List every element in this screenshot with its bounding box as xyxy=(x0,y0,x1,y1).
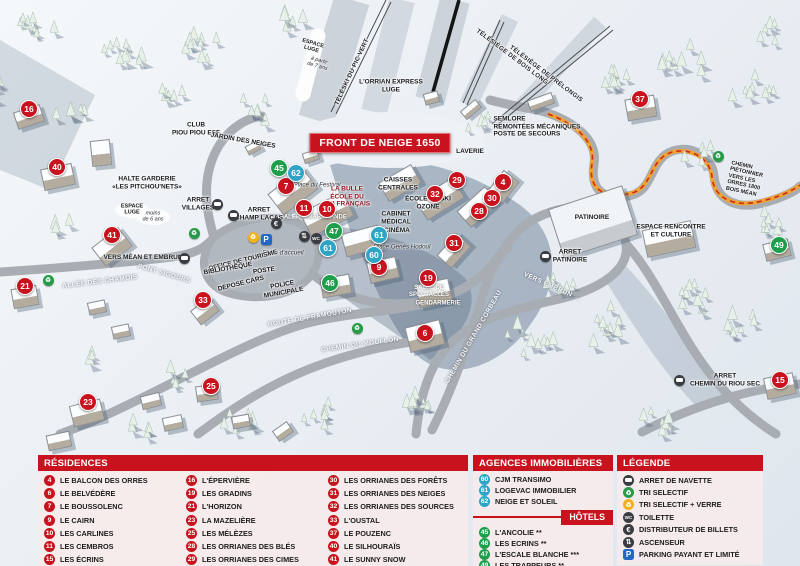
map-marker-25: 25 xyxy=(202,377,220,395)
legend-badge: 7 xyxy=(44,501,55,512)
map-marker-61: 61 xyxy=(370,226,388,244)
map-marker-31: 31 xyxy=(445,234,463,252)
legend-badge: 6 xyxy=(44,488,55,499)
map-label: ARRET CHEMIN DU RIOU SEC xyxy=(690,372,760,387)
legend-item: 46LES ECRINS ** xyxy=(479,538,607,549)
legend-item-label: L'ÉPERVIÈRE xyxy=(202,476,250,485)
map-label: GALERIE MARCHANDE xyxy=(279,214,347,221)
legend-badge: 21 xyxy=(186,501,197,512)
legend-item: 32LES ORRIANES DES SOURCES xyxy=(328,500,462,513)
legend-badge: 47 xyxy=(479,549,490,560)
legend-badge: 31 xyxy=(328,488,339,499)
residences-column: 30LES ORRIANES DES FORÊTS31LES ORRIANES … xyxy=(328,474,462,566)
resort-map: CLUB PIOU PIOU ESFJARDIN DES NEIGESESPAC… xyxy=(0,0,800,566)
legende-list: ARRET DE NAVETTE♻TRI SELECTIF♻TRI SELECT… xyxy=(617,471,763,565)
legend-item-label: CJM TRANSIMO xyxy=(495,475,551,484)
atm-icon: € xyxy=(271,218,282,229)
map-label: HALTE GARDERIE «LES PITCHOU'NETS» xyxy=(112,175,182,190)
legend-item: WCTOILETTE xyxy=(623,511,757,523)
map-label: Place Genès Hodoul xyxy=(374,243,431,250)
map-marker-46: 46 xyxy=(321,274,339,292)
legend-badge: 32 xyxy=(328,501,339,512)
legend-item-label: L'OUSTAL xyxy=(344,516,380,525)
legend-item-label: LA MAZELIÈRE xyxy=(202,516,256,525)
legend-badge: 33 xyxy=(328,515,339,526)
hotels-divider: HÔTELS xyxy=(473,510,613,525)
map-label: VERS MÉAN ET EMBRUN xyxy=(103,254,182,262)
legend-badge: 4 xyxy=(44,475,55,486)
map-label: GENDARMERIE xyxy=(415,300,460,307)
map-marker-41: 41 xyxy=(103,226,121,244)
legend-item-label: PARKING PAYANT ET LIMITÉ xyxy=(639,550,740,559)
front-de-neige-sign: FRONT DE NEIGE 1650 xyxy=(309,133,450,153)
map-label: ESPACE LUGE xyxy=(121,204,143,217)
legend-item-label: LES ORRIANES DES BLÉS xyxy=(202,542,295,551)
map-marker-16: 16 xyxy=(20,100,38,118)
map-marker-29: 29 xyxy=(448,171,466,189)
legend-item-label: LE BALCON DES ORRES xyxy=(60,476,148,485)
agences-header: AGENCES IMMOBILIÈRES xyxy=(473,455,613,471)
bus-stop-icon xyxy=(179,253,190,264)
legend-item-label: ARRET DE NAVETTE xyxy=(639,476,712,485)
legend-item-label: TRI SELECTIF xyxy=(639,488,688,497)
legend-item: 7LE BOUSSOLENC xyxy=(44,500,178,513)
legend-item: ♻TRI SELECTIF + VERRE xyxy=(623,499,757,511)
legend-item: 62NEIGE ET SOLEIL xyxy=(479,496,607,507)
legend-item: 45L'ANCOLIE ** xyxy=(479,527,607,538)
bus-stop-icon xyxy=(674,375,685,386)
residences-column: 4LE BALCON DES ORRES6LE BELVÉDÈRE7LE BOU… xyxy=(44,474,178,566)
map-marker-23: 23 xyxy=(79,393,97,411)
legend-item: 9LE CAIRN xyxy=(44,514,178,527)
bus-stop-icon xyxy=(623,475,634,486)
legend-item-label: LES ÉCRINS xyxy=(60,555,104,564)
atm-icon: € xyxy=(623,524,634,535)
recycle-green-icon: ♻ xyxy=(623,487,634,498)
legend-badge: 29 xyxy=(186,554,197,565)
legend-badge: 62 xyxy=(479,496,490,507)
legend-item-label: LOGEVAC IMMOBILIER xyxy=(495,486,576,495)
legend-item: 40LE SILHOURAÏS xyxy=(328,540,462,553)
legend-badge: 40 xyxy=(328,541,339,552)
legend-item-label: LE CAIRN xyxy=(60,516,94,525)
map-label: L'ORRIAN EXPRESS LUGE xyxy=(359,78,423,93)
map-marker-4: 4 xyxy=(494,173,512,191)
legend-item-label: L'HORIZON xyxy=(202,502,242,511)
map-marker-6: 6 xyxy=(416,324,434,342)
map-marker-45: 45 xyxy=(270,159,288,177)
hotels-header: HÔTELS xyxy=(561,510,613,525)
legend-item: 41LE SUNNY SNOW xyxy=(328,553,462,566)
legend-badge: 61 xyxy=(479,485,490,496)
residences-panel: RÉSIDENCES 4LE BALCON DES ORRES6LE BELVÉ… xyxy=(38,455,468,566)
recycle-glass-icon: ♻ xyxy=(248,232,259,243)
legend-badge: 9 xyxy=(44,515,55,526)
legend-item: 33L'OUSTAL xyxy=(328,514,462,527)
legende-header: LÉGENDE xyxy=(617,455,763,471)
legend-item: 21L'HORIZON xyxy=(186,500,320,513)
legend-item-label: DISTRIBUTEUR DE BILLETS xyxy=(639,525,738,534)
legend-item-label: LE BELVÉDÈRE xyxy=(60,489,115,498)
legend-item: €DISTRIBUTEUR DE BILLETS xyxy=(623,524,757,536)
legend-item-label: LES CEMBROS xyxy=(60,542,114,551)
map-label: PATINOIRE xyxy=(575,214,609,222)
legend-item: 15LES ÉCRINS xyxy=(44,553,178,566)
legend-badge: 46 xyxy=(479,538,490,549)
agences-panel: AGENCES IMMOBILIÈRES 60CJM TRANSIMO61LOG… xyxy=(473,455,613,566)
legend-item: 19LES GRADINS xyxy=(186,487,320,500)
legend-item: ARRET DE NAVETTE xyxy=(623,474,757,486)
residences-list: 4LE BALCON DES ORRES6LE BELVÉDÈRE7LE BOU… xyxy=(38,471,468,566)
map-label: SEMLORE REMONTÉES MÉCANIQUES POSTE DE SE… xyxy=(493,116,580,139)
legend-badge: 49 xyxy=(479,560,490,566)
legend-item: 60CJM TRANSIMO xyxy=(479,474,607,485)
map-marker-32: 32 xyxy=(426,185,444,203)
bus-stop-icon xyxy=(212,199,223,210)
map-label: SALLE DE SPECTACLES xyxy=(409,285,449,299)
map-marker-62: 62 xyxy=(287,164,305,182)
legend-item: 61LOGEVAC IMMOBILIER xyxy=(479,485,607,496)
legend-badge: 25 xyxy=(186,528,197,539)
legend-item-label: LES CARLINES xyxy=(60,529,114,538)
map-label: CINÉMA xyxy=(384,227,410,235)
residences-column: 16L'ÉPERVIÈRE19LES GRADINS21L'HORIZON23L… xyxy=(186,474,320,566)
legend-badge: 16 xyxy=(186,475,197,486)
map-marker-11: 11 xyxy=(295,199,313,217)
legend-item-label: ASCENSEUR xyxy=(639,538,685,547)
legend-item-label: TOILETTE xyxy=(639,513,674,522)
map-label: CABINET MÉDICAL xyxy=(381,210,411,225)
legend-badge: 19 xyxy=(186,488,197,499)
legend-item: 49LES TRAPPEURS ** xyxy=(479,560,607,566)
legend-badge: 45 xyxy=(479,527,490,538)
legend-item: 47L'ESCALE BLANCHE *** xyxy=(479,549,607,560)
building xyxy=(231,413,251,429)
map-marker-49: 49 xyxy=(770,236,788,254)
legend-badge: 28 xyxy=(186,541,197,552)
legend-item: ⇅ASCENSEUR xyxy=(623,536,757,548)
legend-badge: 37 xyxy=(328,528,339,539)
legend-item-label: LES ORRIANES DES NEIGES xyxy=(344,489,445,498)
map-marker-15: 15 xyxy=(771,371,789,389)
recycle-green-icon: ♻ xyxy=(43,275,54,286)
legend-item-label: LE BOUSSOLENC xyxy=(60,502,123,511)
map-marker-30: 30 xyxy=(483,189,501,207)
legend-item-label: LES TRAPPEURS ** xyxy=(495,561,564,566)
legend-badge: 10 xyxy=(44,528,55,539)
legend-item: 4LE BALCON DES ORRES xyxy=(44,474,178,487)
legend-item-label: LES ORRIANES DES CIMES xyxy=(202,555,299,564)
map-label: ESPACE RENCONTRE ET CULTURE xyxy=(636,223,705,238)
legend-item: 30LES ORRIANES DES FORÊTS xyxy=(328,474,462,487)
legend-item-label: L'ESCALE BLANCHE *** xyxy=(495,550,579,559)
map-label: ARRET PATINOIRE xyxy=(553,248,587,263)
residences-header: RÉSIDENCES xyxy=(38,455,468,471)
legend-item-label: LES ORRIANES DES FORÊTS xyxy=(344,476,447,485)
legend-item-label: LES GRADINS xyxy=(202,489,252,498)
legend-item: 23LA MAZELIÈRE xyxy=(186,514,320,527)
parking-icon: P xyxy=(261,234,272,245)
agences-list: 60CJM TRANSIMO61LOGEVAC IMMOBILIER62NEIG… xyxy=(473,471,613,566)
legend-item: PPARKING PAYANT ET LIMITÉ xyxy=(623,548,757,560)
toilet-icon: WC xyxy=(623,512,634,523)
legend-item: 10LES CARLINES xyxy=(44,527,178,540)
legende-panel: LÉGENDE ARRET DE NAVETTE♻TRI SELECTIF♻TR… xyxy=(617,455,763,565)
map-marker-33: 33 xyxy=(194,291,212,309)
legend-item: 37LE POUZENC xyxy=(328,527,462,540)
elevator-icon: ⇅ xyxy=(299,231,310,242)
recycle-green-icon: ♻ xyxy=(189,228,200,239)
map-marker-40: 40 xyxy=(48,158,66,176)
legend-item: 25LES MÉLÈZES xyxy=(186,527,320,540)
legend-item-label: LES MÉLÈZES xyxy=(202,529,253,538)
recycle-glass-icon: ♻ xyxy=(623,499,634,510)
recycle-green-icon: ♻ xyxy=(713,151,724,162)
map-marker-47: 47 xyxy=(325,222,343,240)
map-marker-60: 60 xyxy=(365,246,383,264)
legend-badge: 15 xyxy=(44,554,55,565)
elevator-icon: ⇅ xyxy=(623,537,634,548)
legend-badge: 41 xyxy=(328,554,339,565)
map-marker-21: 21 xyxy=(16,277,34,295)
legend-badge: 23 xyxy=(186,515,197,526)
legend-item: ♻TRI SELECTIF xyxy=(623,486,757,498)
legend-item-label: LES ORRIANES DES SOURCES xyxy=(344,502,454,511)
legend-item-label: LE SILHOURAÏS xyxy=(344,542,400,551)
legend-item: 31LES ORRIANES DES NEIGES xyxy=(328,487,462,500)
legend-item: 11LES CEMBROS xyxy=(44,540,178,553)
legend-badge: 60 xyxy=(479,474,490,485)
legend-item: 29LES ORRIANES DES CIMES xyxy=(186,553,320,566)
bus-stop-icon xyxy=(228,210,239,221)
map-marker-10: 10 xyxy=(318,200,336,218)
map-marker-37: 37 xyxy=(631,90,649,108)
map-marker-19: 19 xyxy=(419,269,437,287)
building xyxy=(90,139,113,167)
legend-item-label: LES ECRINS ** xyxy=(495,539,547,548)
map-marker-61: 61 xyxy=(319,239,337,257)
legend-item-label: TRI SELECTIF + VERRE xyxy=(639,500,722,509)
legend-item-label: LE POUZENC xyxy=(344,529,391,538)
legend-item-label: L'ANCOLIE ** xyxy=(495,528,542,537)
legend-item: 28LES ORRIANES DES BLÉS xyxy=(186,540,320,553)
map-label: CAISSES CENTRALES xyxy=(378,176,418,191)
map-label: ARRET VILLAGES xyxy=(182,196,215,211)
legend-item-label: NEIGE ET SOLEIL xyxy=(495,497,557,506)
legend-item: 6LE BELVÉDÈRE xyxy=(44,487,178,500)
bus-stop-icon xyxy=(540,251,551,262)
legend-badge: 30 xyxy=(328,475,339,486)
hotels-list: 45L'ANCOLIE **46LES ECRINS **47L'ESCALE … xyxy=(479,527,607,566)
map-label: LAVERIE xyxy=(456,148,484,156)
recycle-green-icon: ♻ xyxy=(352,323,363,334)
parking-icon: P xyxy=(623,549,634,560)
legend-item: 16L'ÉPERVIÈRE xyxy=(186,474,320,487)
legend-badge: 11 xyxy=(44,541,55,552)
legend-item-label: LE SUNNY SNOW xyxy=(344,555,406,564)
map-label: moins de 6 ans xyxy=(142,211,163,224)
